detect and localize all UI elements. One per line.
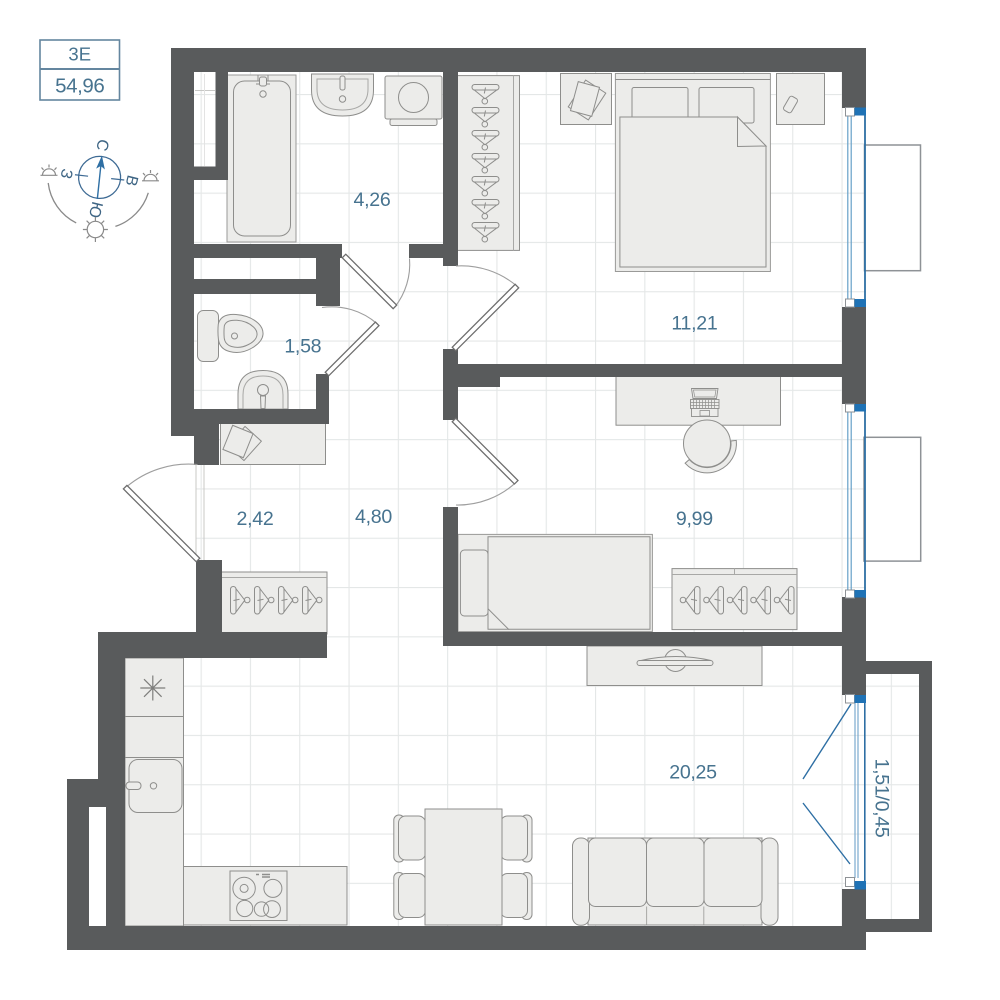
svg-text:В: В — [122, 173, 141, 187]
svg-text:54,96: 54,96 — [55, 75, 104, 98]
svg-text:1,58: 1,58 — [284, 335, 321, 357]
svg-text:4,26: 4,26 — [354, 189, 391, 211]
svg-text:2,42: 2,42 — [237, 508, 274, 530]
svg-text:С: С — [92, 137, 111, 152]
svg-text:11,21: 11,21 — [671, 313, 717, 335]
svg-text:З: З — [56, 167, 75, 180]
svg-text:Ю: Ю — [85, 200, 105, 220]
svg-text:4,80: 4,80 — [355, 506, 392, 528]
svg-text:20,25: 20,25 — [669, 762, 717, 784]
svg-text:1,51/0,45: 1,51/0,45 — [870, 758, 892, 837]
svg-text:3Е: 3Е — [68, 44, 91, 65]
svg-text:9,99: 9,99 — [676, 508, 713, 530]
